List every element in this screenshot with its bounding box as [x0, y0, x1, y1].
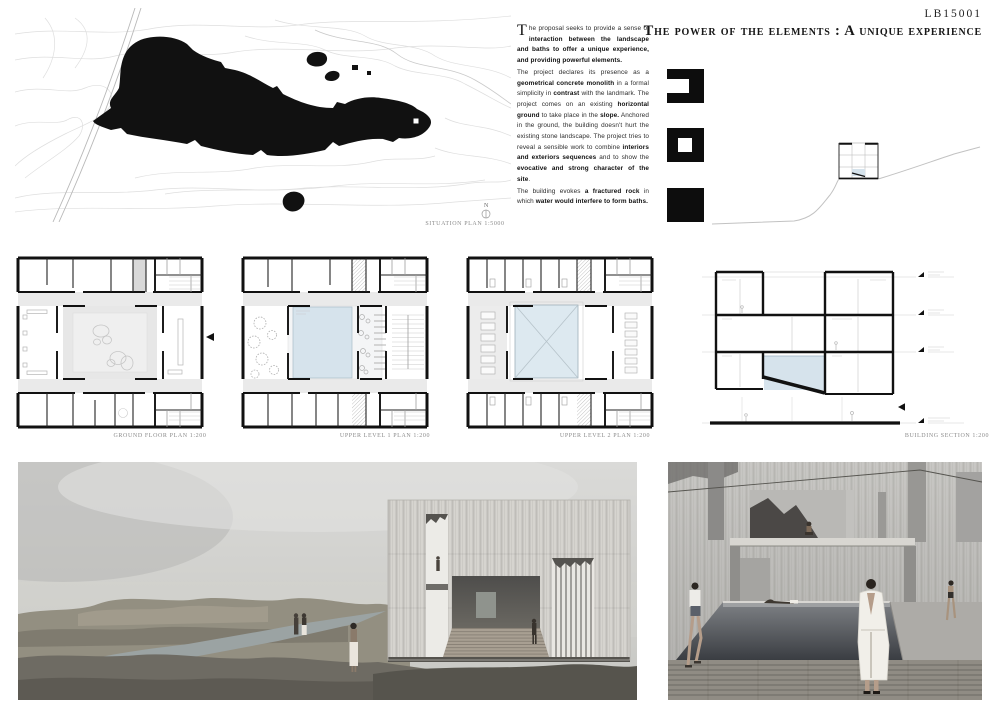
site-section-building	[839, 143, 878, 179]
stairs	[392, 315, 424, 369]
upper-level-2-plan	[465, 255, 655, 430]
page-title: The power of the elements : A unique exp…	[644, 23, 982, 40]
monolith-building	[388, 500, 630, 662]
pool	[293, 307, 352, 378]
board-id: LB15001	[925, 8, 982, 20]
figure-in-slot	[436, 556, 440, 571]
situation-plan-map: N	[15, 8, 511, 222]
caption-upper-level-2: UPPER LEVEL 2 PLAN 1:200	[510, 433, 700, 439]
level-markers	[918, 272, 924, 423]
foreground-figure	[350, 623, 359, 672]
interior-render	[668, 462, 982, 700]
exterior-render	[18, 462, 637, 700]
restaurant-tables	[248, 317, 279, 378]
intro-paragraphs: The proposal seeks to provide a sense of…	[517, 24, 649, 208]
side-walkway	[890, 602, 982, 670]
ground-floor-plan	[15, 255, 205, 430]
svg-text:N: N	[484, 203, 489, 209]
site-section-drawing	[662, 55, 992, 233]
lake-shape	[93, 37, 431, 156]
caption-upper-level-1: UPPER LEVEL 1 PLAN 1:200	[290, 433, 480, 439]
north-arrow-icon: N	[482, 203, 490, 218]
plan-direction-arrow	[206, 333, 214, 341]
presentation-board: N SITUATION PLAN 1:5000 The proposal see…	[0, 0, 1000, 706]
upper-level-1-plan	[240, 255, 430, 430]
section-direction-arrow	[898, 403, 905, 411]
site-marker	[413, 118, 419, 124]
caption-building-section: BUILDING SECTION 1:200	[852, 433, 1000, 439]
intro-text: The proposal seeks to provide a sense of…	[517, 24, 649, 209]
caption-situation-plan: SITUATION PLAN 1:5000	[370, 221, 560, 227]
building-section-drawing	[702, 257, 982, 432]
caption-ground-floor: GROUND FLOOR PLAN 1:200	[65, 433, 255, 439]
